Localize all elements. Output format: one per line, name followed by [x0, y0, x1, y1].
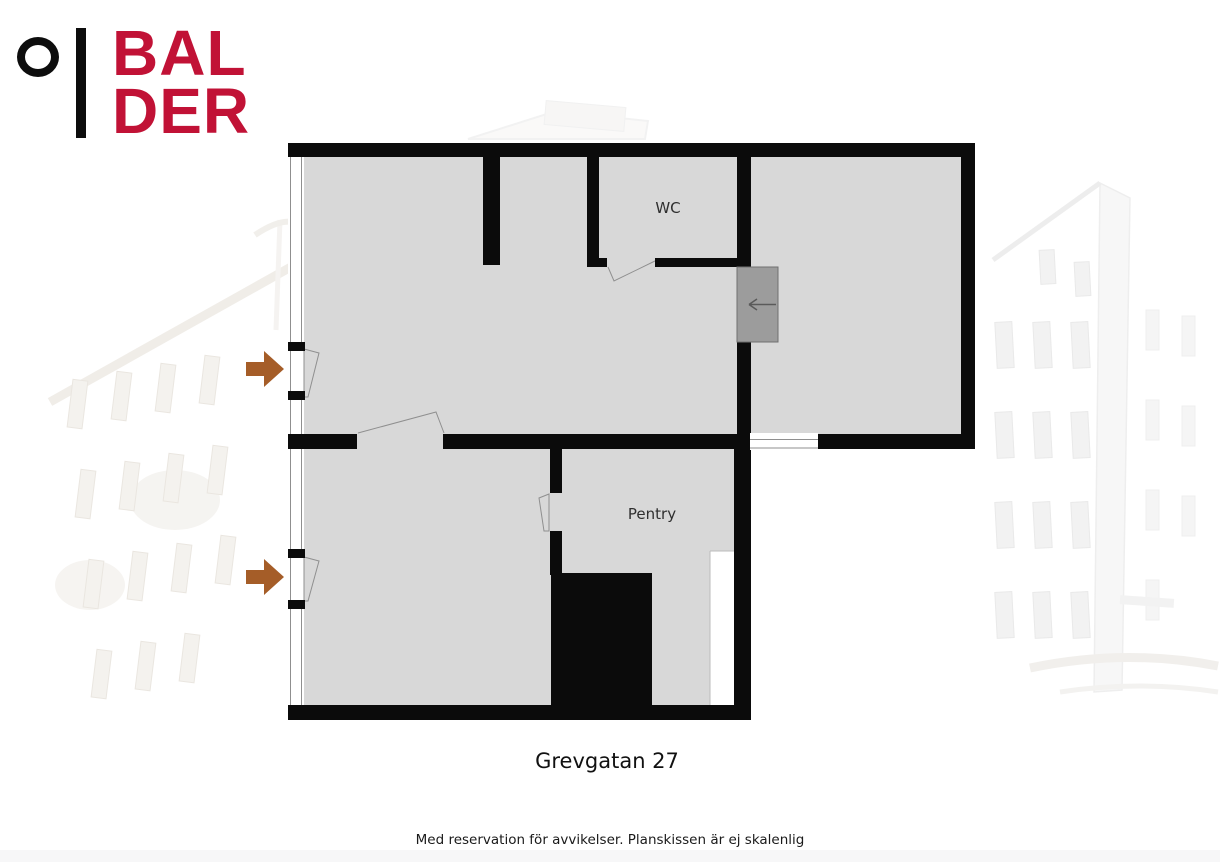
shaft-block	[551, 573, 652, 720]
watermark-roof-top	[468, 101, 648, 139]
window-bottom-right	[750, 433, 818, 450]
room-label-wc: WC	[655, 199, 680, 217]
entrance-arrows	[246, 351, 284, 595]
window-wall-left	[288, 157, 304, 705]
lift-block	[737, 267, 778, 342]
address-title: Grevgatan 27	[0, 749, 1214, 773]
lower-entrance-arrow-icon	[246, 559, 284, 595]
disclaimer-text: Med reservation för avvikelser. Planskis…	[0, 832, 1220, 848]
upper-entrance-arrow-icon	[246, 351, 284, 387]
watermark-building-left	[50, 220, 303, 700]
watermark-building-right	[993, 183, 1218, 692]
page: BAL DER	[0, 0, 1220, 862]
floor-plan: WC Pentry	[0, 0, 1220, 862]
bottom-strip	[0, 850, 1220, 862]
pentry-recess	[710, 551, 736, 707]
room-label-pentry: Pentry	[628, 505, 676, 523]
